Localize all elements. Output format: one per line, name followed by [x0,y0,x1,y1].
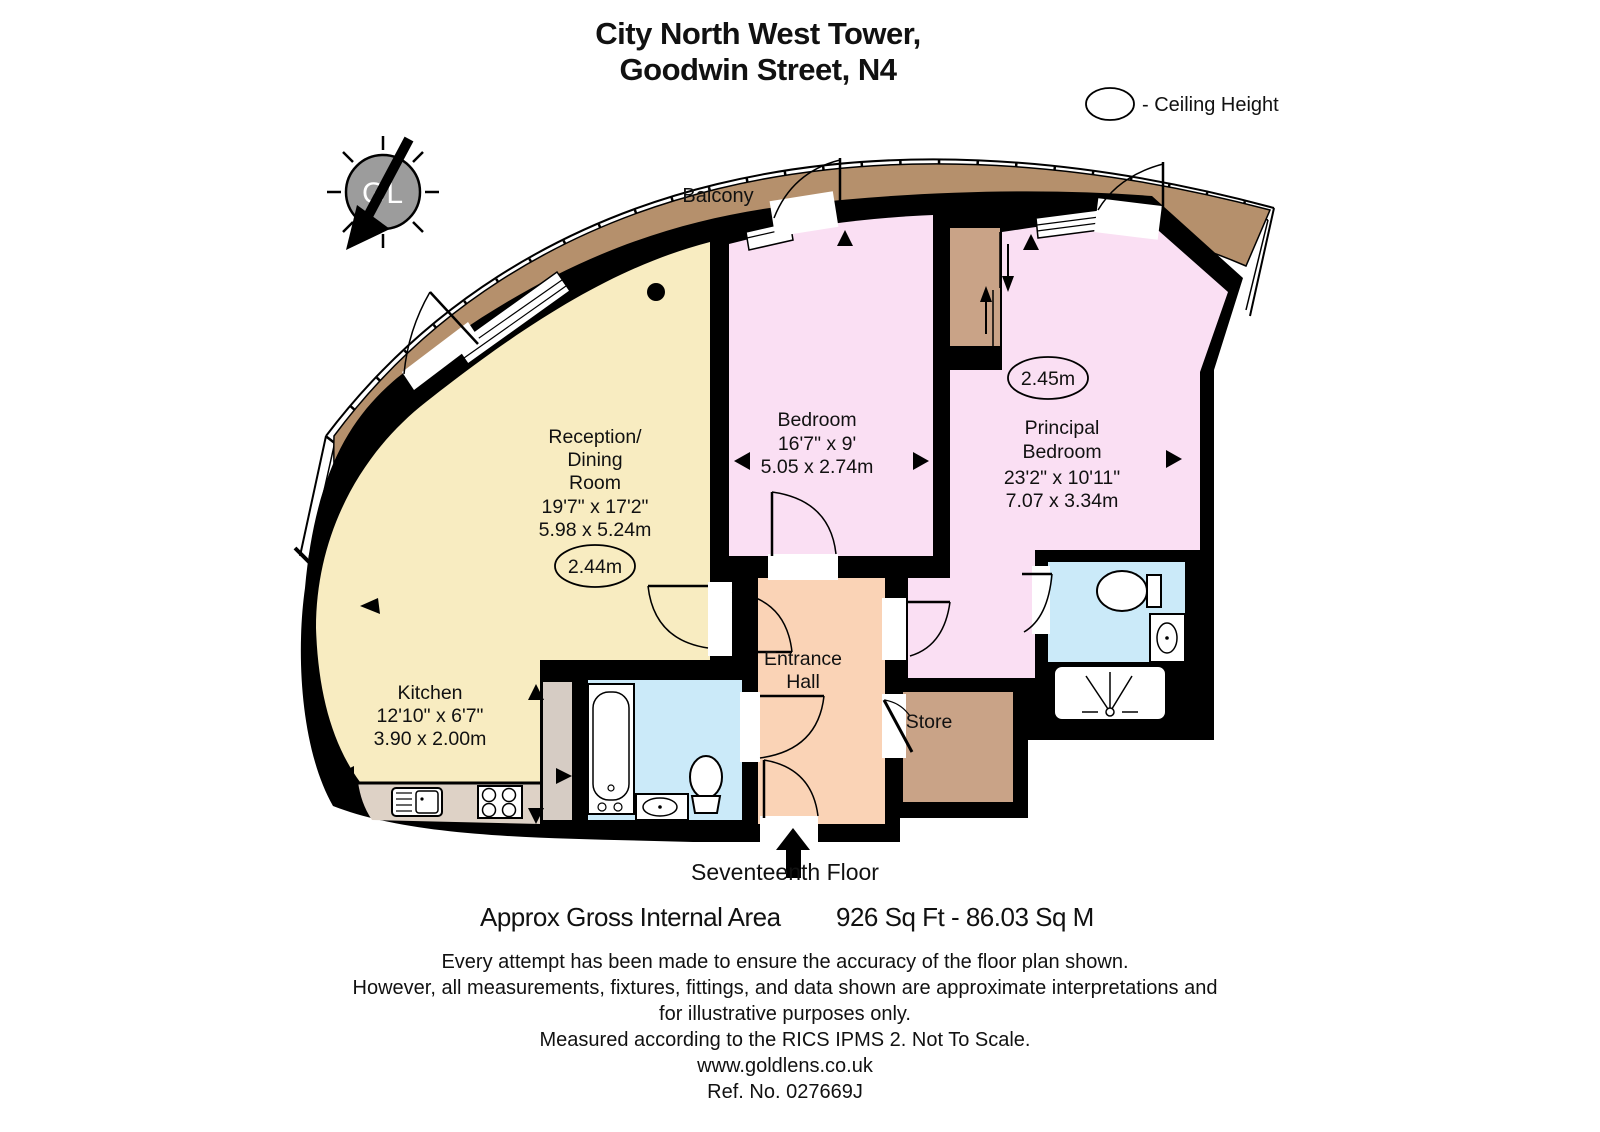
room-entrance-hall [758,578,885,824]
svg-text:for illustrative purposes only: for illustrative purposes only. [659,1003,911,1025]
column-dot [647,283,665,301]
reference-label: Ref. No. 027669J [707,1081,863,1103]
svg-text:Bedroom: Bedroom [777,409,856,431]
bath-icon [588,684,634,814]
svg-text:16'7" x 9': 16'7" x 9' [778,433,856,455]
ceiling-height-ellipse-icon [1086,88,1134,120]
svg-text:Kitchen: Kitchen [397,682,462,704]
svg-text:5.98 x 5.24m: 5.98 x 5.24m [539,519,652,541]
svg-text:Hall: Hall [786,671,820,693]
room-bedroom [729,215,933,556]
kitchen-sink-icon [392,788,442,816]
ensuite-basin-icon [1150,614,1185,662]
svg-text:12'10" x 6'7": 12'10" x 6'7" [377,705,484,727]
ceiling-height-legend: - Ceiling Height [1086,88,1279,120]
svg-text:3.90 x 2.00m: 3.90 x 2.00m [374,728,487,750]
floor-plan-canvas: GL - Ceiling Height City North West Towe… [0,0,1600,1132]
floorplan-page: GL - Ceiling Height City North West Towe… [0,0,1600,1132]
svg-text:Measured according to the RICS: Measured according to the RICS IPMS 2. N… [540,1029,1031,1051]
svg-text:23'2" x 10'11": 23'2" x 10'11" [1004,467,1120,489]
floor-label: Seventeenth Floor [691,859,879,885]
svg-text:Reception/: Reception/ [548,426,642,448]
svg-text:However, all measurements, fix: However, all measurements, fixtures, fit… [353,977,1218,999]
kitchen-cupboard [543,682,572,820]
svg-text:Principal: Principal [1025,417,1100,439]
balcony-label: Balcony [682,185,753,207]
bathroom-toilet-icon [690,756,722,813]
page-title-line2: Goodwin Street, N4 [620,52,898,87]
page-title-line1: City North West Tower, [595,16,920,51]
kitchen-hob-icon [478,786,522,818]
svg-text:5.05 x 2.74m: 5.05 x 2.74m [761,456,874,478]
area-label: Approx Gross Internal Area [480,902,782,932]
room-store [903,692,1013,802]
svg-text:Room: Room [569,472,621,494]
svg-text:2.44m: 2.44m [568,556,622,578]
ceiling-height-label: - Ceiling Height [1142,94,1279,116]
bathroom-basin-icon [636,794,688,820]
shower-icon [1054,666,1166,720]
svg-text:Dining: Dining [567,449,622,471]
store-label: Store [906,711,953,733]
disclaimer: Every attempt has been made to ensure th… [353,951,1218,1051]
svg-text:2.45m: 2.45m [1021,368,1075,390]
svg-text:Bedroom: Bedroom [1022,441,1101,463]
svg-text:7.07 x 3.34m: 7.07 x 3.34m [1006,490,1119,512]
svg-text:19'7" x 17'2": 19'7" x 17'2" [542,496,649,518]
website-label: www.goldlens.co.uk [696,1055,874,1077]
compass: GL [327,136,439,250]
area-value: 926 Sq Ft - 86.03 Sq M [836,902,1094,932]
svg-text:Entrance: Entrance [764,648,842,670]
ensuite-toilet-icon [1097,571,1161,611]
svg-text:Every attempt has been made to: Every attempt has been made to ensure th… [441,951,1128,973]
